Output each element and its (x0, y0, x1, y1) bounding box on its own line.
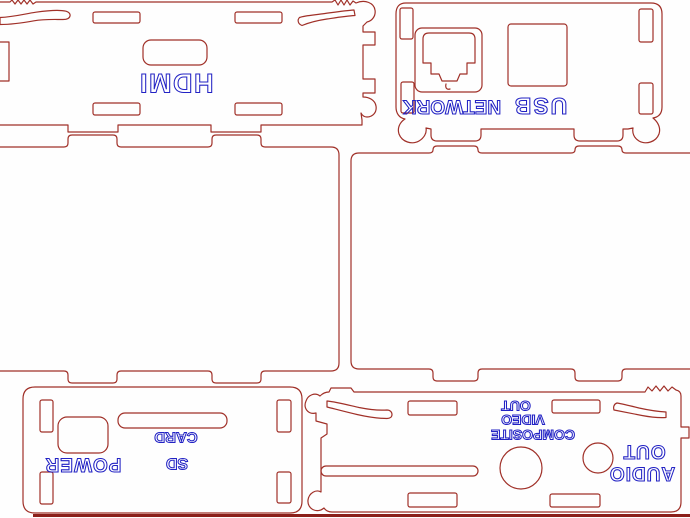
corner-slot (277, 472, 291, 503)
hdmi-panel: HDMI (0, 0, 376, 132)
flex-cut-right (614, 403, 666, 418)
network-port-cutout (415, 28, 482, 92)
base-plate-left (0, 135, 339, 383)
corner-slot (639, 83, 653, 114)
base-plate-left-outline (0, 135, 339, 383)
power-sd-panel: POWER SD CARD (23, 387, 302, 513)
power-sd-panel-outline (23, 387, 302, 513)
corner-slot (277, 400, 291, 432)
corner-slot (40, 400, 53, 432)
mounting-slot (550, 494, 600, 507)
mounting-slot (235, 103, 282, 115)
cutting-layout-canvas: HDMI NETWORK USB POWER SD CARD (0, 0, 690, 518)
base-plate-right-outline (351, 146, 690, 381)
composite-label-line1: COMPOSITE (491, 427, 575, 443)
audio-jack-cutout (583, 443, 613, 473)
composite-video-cutout (500, 447, 542, 489)
flex-cut-left (327, 401, 392, 419)
usb-network-panel: NETWORK USB (396, 3, 662, 143)
corner-slot (40, 472, 53, 504)
sd-label-line1: SD (166, 455, 188, 472)
hdmi-port-cutout (143, 40, 207, 65)
corner-slot (400, 8, 413, 39)
mounting-slot (235, 12, 282, 23)
audio-label-line1: AUDIO (609, 463, 675, 484)
laser-cut-layout-preview: HDMI NETWORK USB POWER SD CARD (0, 0, 690, 518)
sd-label-line2: CARD (154, 429, 197, 446)
power-port-cutout (58, 417, 108, 453)
flex-cut-right (298, 10, 355, 26)
hdmi-label: HDMI (139, 68, 214, 98)
composite-label-line3: OUT (501, 398, 531, 414)
power-label: POWER (45, 454, 122, 475)
audio-label-line2: OUT (622, 441, 665, 462)
mounting-slot (93, 12, 140, 23)
sd-card-slot-cutout (118, 413, 227, 428)
mounting-slot (93, 103, 140, 115)
base-plate-right (351, 146, 690, 381)
mounting-slot (408, 401, 457, 415)
corner-slot (639, 9, 653, 42)
network-label: NETWORK (403, 96, 501, 117)
hdmi-panel-left-edge-notch (0, 42, 9, 81)
mounting-slot (552, 400, 600, 413)
usb-label: USB (513, 93, 568, 119)
av-panel: COMPOSITE VIDEO OUT AUDIO OUT (305, 386, 689, 512)
usb-port-cutout (508, 24, 567, 86)
rj45-plug-profile (423, 33, 475, 81)
flex-cut-left (0, 10, 70, 24)
rj45-clip-tick (446, 84, 450, 89)
mounting-slot (408, 493, 457, 507)
flex-arm-slit (321, 466, 478, 476)
